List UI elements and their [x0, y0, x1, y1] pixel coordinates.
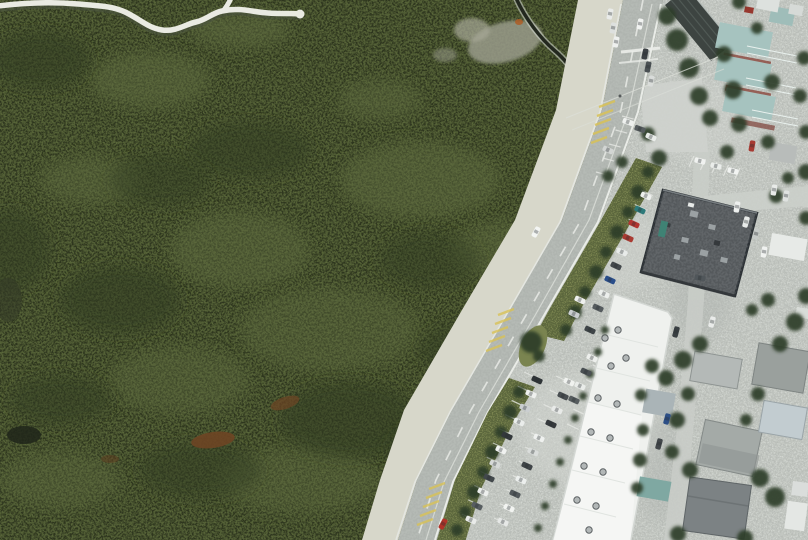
tree	[571, 414, 579, 422]
tree	[564, 436, 572, 444]
trail-end-pad	[296, 10, 305, 19]
tree	[556, 458, 564, 466]
tree	[601, 326, 609, 334]
tree	[690, 87, 708, 105]
tree	[681, 387, 695, 401]
rooftop-hvac	[600, 469, 606, 475]
tree	[602, 170, 614, 182]
tree	[751, 469, 769, 487]
tree	[560, 324, 572, 336]
tree	[633, 453, 647, 467]
island-bush	[520, 331, 542, 353]
tree	[579, 392, 587, 400]
tree	[720, 145, 734, 159]
tree	[631, 482, 643, 494]
tree	[761, 293, 775, 307]
tree	[679, 58, 699, 78]
tree	[533, 350, 545, 362]
aerial-photo	[0, 0, 808, 540]
tree	[579, 286, 591, 298]
tree	[637, 424, 649, 436]
rooftop-hvac	[623, 355, 629, 361]
tree	[665, 445, 679, 459]
tree	[702, 110, 718, 126]
rooftop-hvac	[586, 527, 592, 533]
tree	[645, 359, 659, 373]
dark-house-roof	[683, 477, 752, 539]
rooftop-hvac	[608, 363, 614, 369]
rooftop-hvac	[574, 497, 580, 503]
tree	[782, 172, 794, 184]
tree	[786, 313, 804, 331]
tree	[772, 336, 788, 352]
tree	[451, 524, 463, 536]
tree	[541, 502, 549, 510]
dark-wet-area	[7, 426, 41, 444]
tree	[651, 150, 667, 166]
tree	[674, 351, 692, 369]
blue-shed-roof	[642, 389, 676, 418]
tree	[740, 414, 752, 426]
tree	[635, 389, 647, 401]
rooftop-hvac	[593, 503, 599, 509]
tree	[658, 7, 676, 25]
utility-pole	[619, 95, 622, 98]
blue-house-roof	[759, 400, 808, 439]
rooftop-hvac	[602, 335, 608, 341]
tree	[764, 74, 780, 90]
tree	[716, 46, 732, 62]
tree	[751, 22, 763, 34]
tree	[600, 246, 612, 258]
tree	[765, 487, 785, 507]
tree	[589, 265, 603, 279]
tree	[658, 370, 674, 386]
tree	[666, 29, 688, 51]
rooftop-hvac	[595, 395, 601, 401]
tree	[746, 304, 758, 316]
tree	[731, 116, 747, 132]
rooftop-hvac	[581, 463, 587, 469]
tree	[751, 387, 765, 401]
tree	[669, 412, 685, 428]
tree	[503, 405, 517, 419]
rooftop-hvac	[607, 435, 613, 441]
rooftop-hvac	[588, 429, 594, 435]
aerial-photo-viewport	[0, 0, 808, 540]
tree	[622, 206, 634, 218]
tree	[594, 348, 602, 356]
rooftop-hvac	[615, 327, 621, 333]
tree	[616, 156, 628, 168]
tree	[761, 135, 775, 149]
tree	[793, 89, 807, 103]
rooftop-hvac	[614, 401, 620, 407]
tree	[692, 336, 708, 352]
tree	[534, 524, 542, 532]
tree	[610, 225, 624, 239]
tree	[642, 166, 654, 178]
tree	[682, 462, 698, 478]
tree	[724, 81, 742, 99]
tree	[549, 480, 557, 488]
tree	[513, 386, 525, 398]
